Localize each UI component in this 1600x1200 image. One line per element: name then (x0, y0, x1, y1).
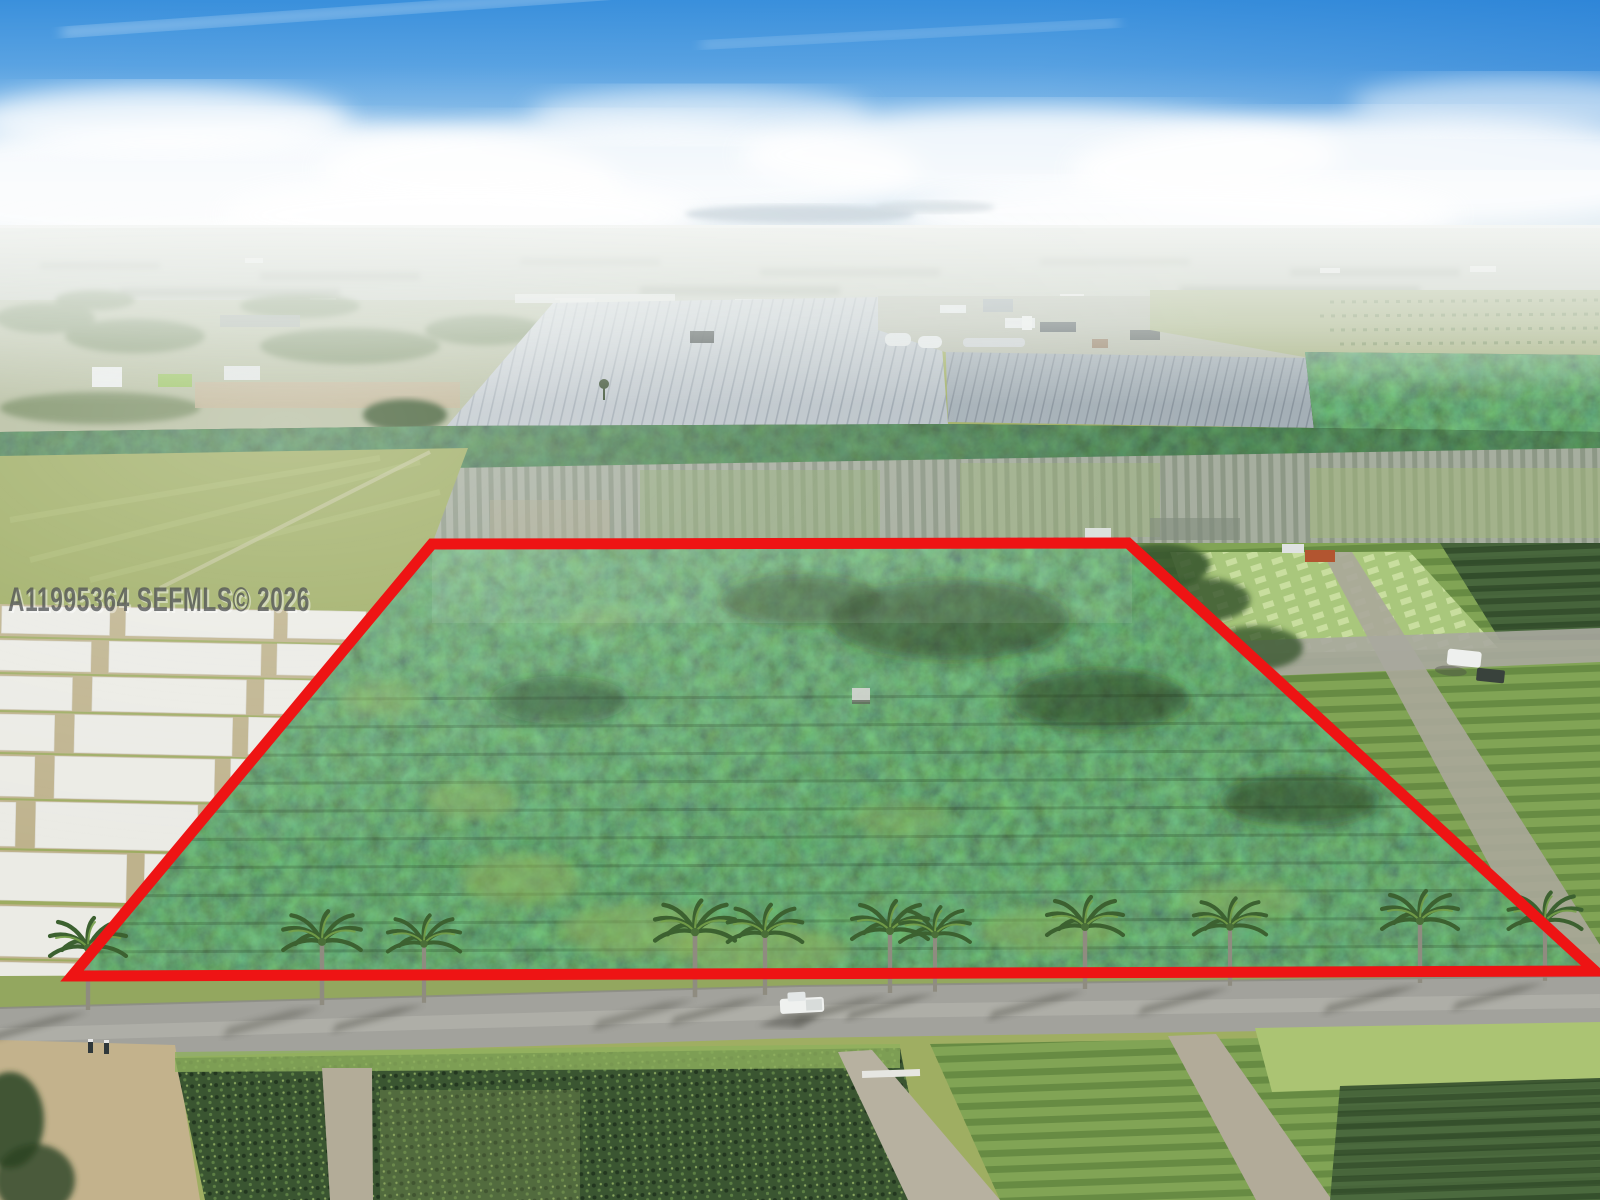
dark-rows-right (1330, 1078, 1600, 1200)
truck-bed (806, 999, 823, 1011)
horizon-haze (0, 225, 1600, 405)
nursery-path (322, 1068, 373, 1200)
white-plot (0, 852, 127, 903)
truck-cab (787, 992, 805, 1002)
aerial-photo: A11995364 SEFMLS© 2026 A11995364 SEFMLS©… (0, 0, 1600, 1200)
watermark: A11995364 SEFMLS© 2026 A11995364 SEFMLS©… (8, 581, 312, 621)
watermark-text: A11995364 SEFMLS© 2026 (8, 581, 310, 619)
aerial-photo-frame: A11995364 SEFMLS© 2026 A11995364 SEFMLS©… (0, 0, 1600, 1200)
lighter-rows-patch (380, 1090, 580, 1200)
orange-container (1305, 550, 1335, 562)
